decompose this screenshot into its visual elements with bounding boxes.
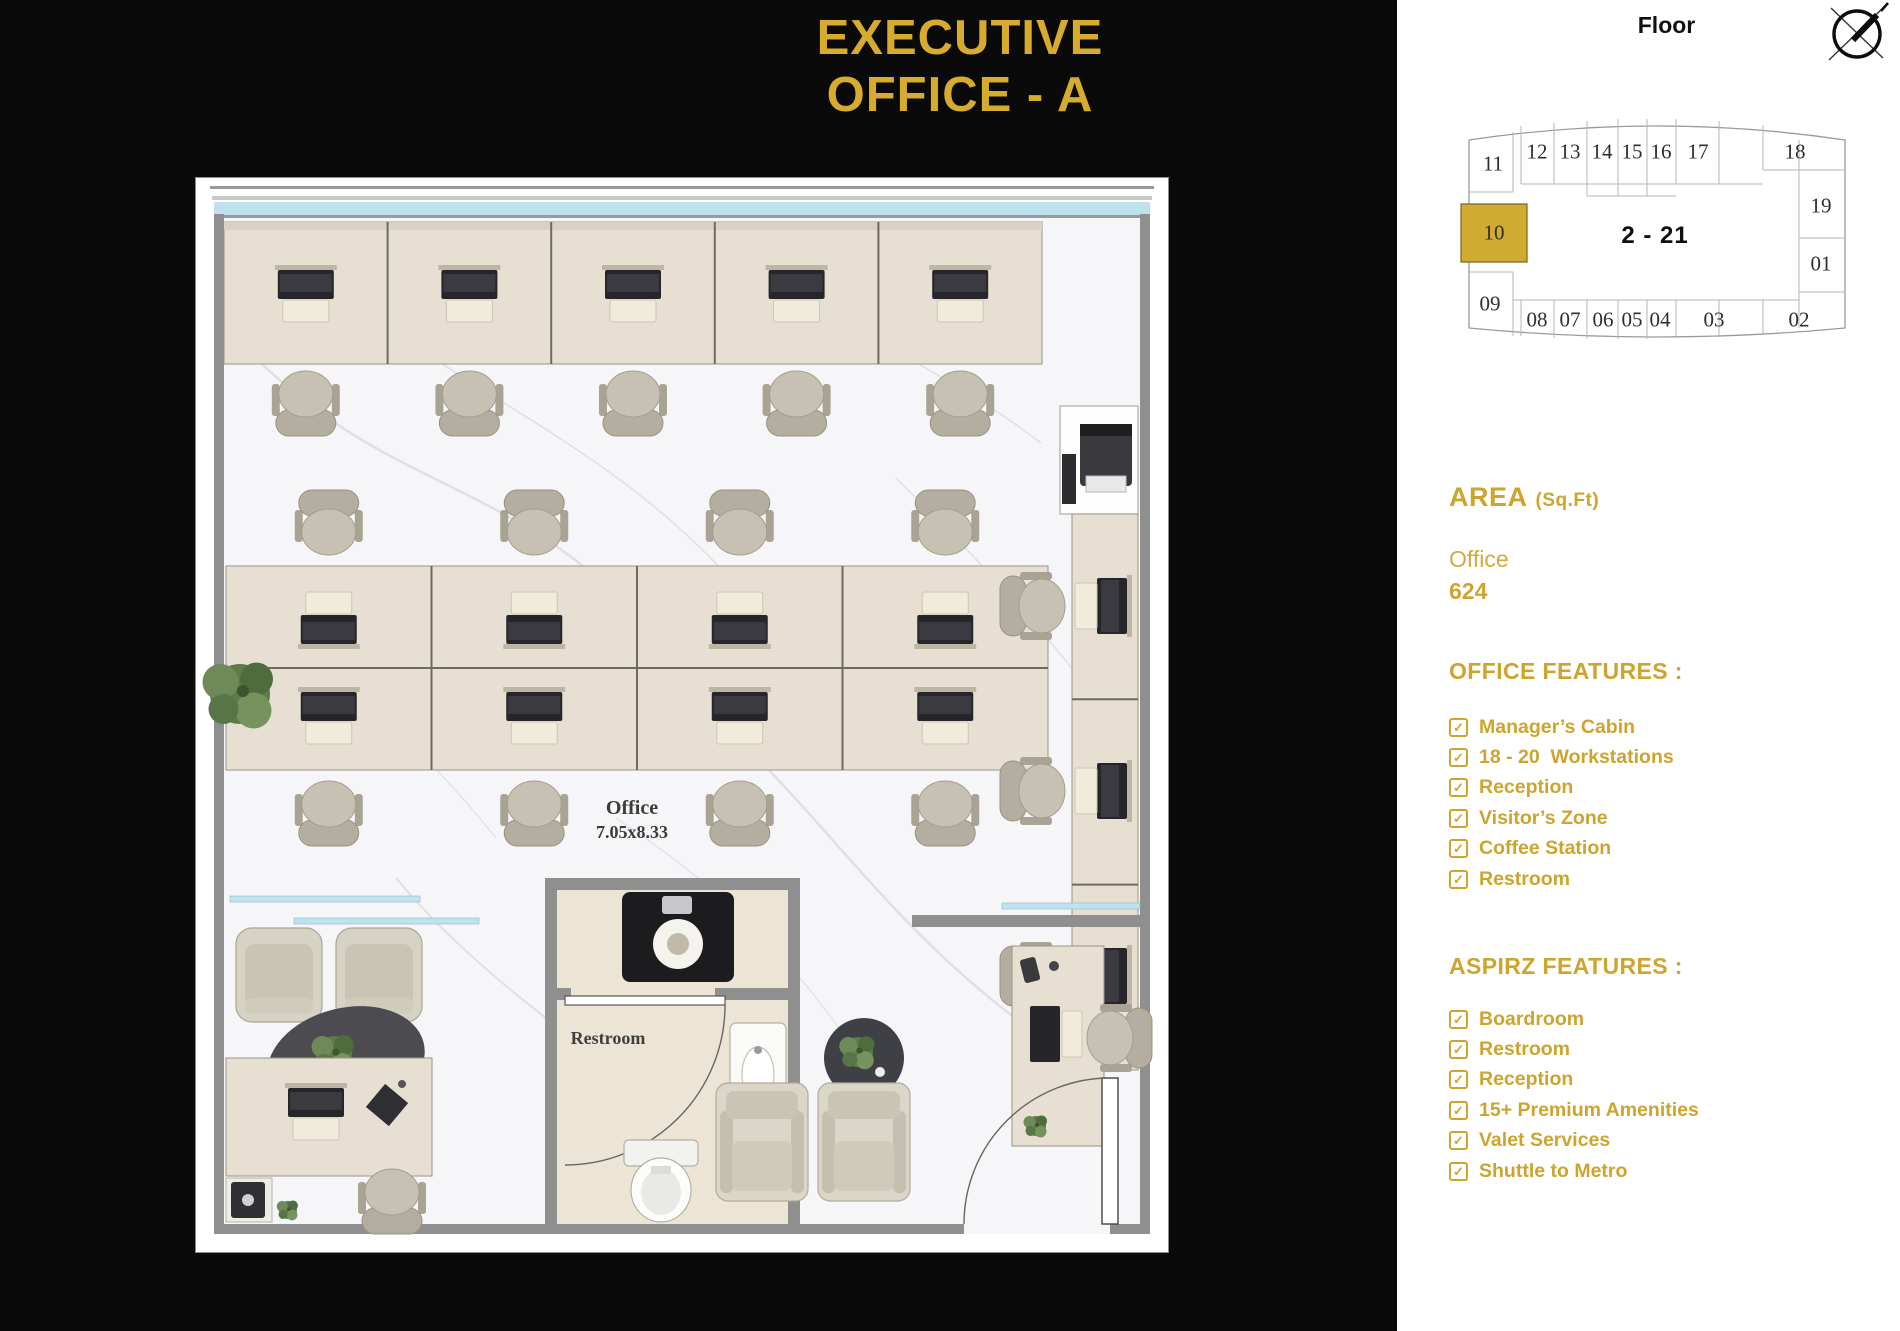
laptop xyxy=(503,592,565,649)
laptop xyxy=(602,265,664,322)
office-room-label: Office xyxy=(606,797,658,819)
checkbox-checked-icon: ✓ xyxy=(1449,718,1468,737)
unit-label: 18 xyxy=(1785,140,1806,165)
floor-key-diagram: 11 12 13 14 15 16 17 18 19 01 10 09 08 0… xyxy=(1457,92,1865,360)
wall xyxy=(545,878,557,1224)
feature-item-label: Boardroom xyxy=(1479,1008,1584,1031)
area-heading: AREA(Sq.Ft) xyxy=(1449,482,1599,513)
feature-item-label: Visitor’s Zone xyxy=(1479,807,1608,830)
unit-label: 12 xyxy=(1527,140,1548,165)
unit-label: 19 xyxy=(1811,194,1832,219)
unit-label: 02 xyxy=(1789,308,1810,333)
feature-item-label: Manager’s Cabin xyxy=(1479,716,1635,739)
unit-label: 03 xyxy=(1704,308,1725,333)
unit-label: 08 xyxy=(1527,308,1548,333)
laptop xyxy=(929,265,991,322)
left-wall xyxy=(214,214,224,1234)
plant xyxy=(1024,1116,1048,1138)
glass-partition xyxy=(1002,903,1140,909)
unit-label: 17 xyxy=(1688,140,1709,165)
floor-plan-drawing: Office 7.05x8.33 xyxy=(196,178,1168,1252)
unit-label: 05 xyxy=(1622,308,1643,333)
feature-item: ✓ Coffee Station xyxy=(1449,834,1869,864)
feature-item-label: Reception xyxy=(1479,1068,1573,1091)
waiting-armchair xyxy=(716,1083,808,1201)
laptop xyxy=(914,687,976,744)
checkbox-checked-icon: ✓ xyxy=(1449,809,1468,828)
feature-item: ✓ 15+ Premium Amenities xyxy=(1449,1095,1869,1125)
unit-label: 11 xyxy=(1483,152,1503,177)
laptop xyxy=(275,265,337,322)
feature-item: ✓ Reception xyxy=(1449,1065,1869,1095)
bottom-wall-right xyxy=(1110,1224,1150,1234)
feature-item: ✓ Manager’s Cabin xyxy=(1449,712,1869,742)
feature-item: ✓ Boardroom xyxy=(1449,1004,1869,1034)
checkbox-checked-icon: ✓ xyxy=(1449,1010,1468,1029)
coffee-cup xyxy=(242,1194,254,1206)
feature-item: ✓ Restroom xyxy=(1449,1034,1869,1064)
window-glass-strip xyxy=(214,202,1150,215)
laptop xyxy=(285,1083,347,1140)
floor-plan: Office 7.05x8.33 xyxy=(196,178,1168,1252)
feature-item: ✓ Valet Services xyxy=(1449,1126,1869,1156)
feature-item: ✓ Reception xyxy=(1449,773,1869,803)
right-wall xyxy=(1140,214,1150,1234)
feature-item-label: Restroom xyxy=(1479,1038,1570,1061)
laptop xyxy=(1075,760,1132,822)
glass-partition xyxy=(230,896,420,902)
coffee-station xyxy=(622,892,734,982)
restroom-label: Restroom xyxy=(571,1028,646,1048)
area-office-value: 624 xyxy=(1449,578,1487,605)
decor-tray xyxy=(875,1067,885,1077)
laptop xyxy=(298,592,360,649)
aspirz-features-list: ✓ Boardroom ✓ Restroom ✓ Reception ✓ 15+… xyxy=(1449,1004,1869,1186)
unit-label: 15 xyxy=(1622,140,1643,165)
unit-label: 06 xyxy=(1593,308,1614,333)
feature-item-label: Shuttle to Metro xyxy=(1479,1160,1627,1183)
restroom-door-leaf xyxy=(565,996,725,1005)
unit-label: 07 xyxy=(1560,308,1581,333)
area-office-label: Office xyxy=(1449,546,1509,573)
checkbox-checked-icon: ✓ xyxy=(1449,778,1468,797)
laptop xyxy=(766,265,828,322)
laptop xyxy=(503,687,565,744)
wall xyxy=(545,878,800,890)
printer-station xyxy=(1060,406,1138,514)
checkbox-checked-icon: ✓ xyxy=(1449,1162,1468,1181)
feature-item: ✓ Restroom xyxy=(1449,864,1869,894)
laptop xyxy=(298,687,360,744)
plant xyxy=(277,1201,298,1221)
feature-item-label: Coffee Station xyxy=(1479,837,1611,860)
laptop xyxy=(1075,575,1132,637)
compass-north-icon xyxy=(1817,0,1897,64)
feature-item-label: Restroom xyxy=(1479,868,1570,891)
office-features-heading: OFFICE FEATURES : xyxy=(1449,658,1683,685)
brochure-page: EXECUTIVE OFFICE - A xyxy=(0,0,1900,1331)
waiting-armchair xyxy=(818,1083,910,1201)
laptop xyxy=(709,687,771,744)
feature-item-label: 15+ Premium Amenities xyxy=(1479,1099,1699,1122)
checkbox-checked-icon: ✓ xyxy=(1449,870,1468,889)
checkbox-checked-icon: ✓ xyxy=(1449,1070,1468,1089)
area-unit-suffix: (Sq.Ft) xyxy=(1536,490,1600,511)
feature-item-label: Reception xyxy=(1479,776,1573,799)
office-features-list: ✓ Manager’s Cabin ✓ 18 - 20 Workstations… xyxy=(1449,712,1869,894)
laptop xyxy=(914,592,976,649)
feature-item: ✓ Visitor’s Zone xyxy=(1449,803,1869,833)
feature-item: ✓ 18 - 20 Workstations xyxy=(1449,742,1869,772)
entry-door-leaf xyxy=(1102,1078,1118,1224)
bottom-wall-left xyxy=(214,1224,964,1234)
exterior-wall-line xyxy=(210,186,1154,189)
unit-label: 14 xyxy=(1592,140,1613,165)
wall xyxy=(715,988,800,1000)
page-title: EXECUTIVE OFFICE - A xyxy=(740,10,1180,124)
checkbox-checked-icon: ✓ xyxy=(1449,1131,1468,1150)
desk-accessory xyxy=(1049,961,1059,971)
checkbox-checked-icon: ✓ xyxy=(1449,1040,1468,1059)
area-heading-text: AREA xyxy=(1449,482,1528,512)
laptop xyxy=(438,265,500,322)
plant xyxy=(839,1036,874,1069)
unit-label: 04 xyxy=(1650,308,1671,333)
feature-item: ✓ Shuttle to Metro xyxy=(1449,1156,1869,1186)
aspirz-features-heading: ASPIRZ FEATURES : xyxy=(1449,953,1683,980)
feature-item-label: 18 - 20 Workstations xyxy=(1479,746,1674,769)
feature-item-label: Valet Services xyxy=(1479,1129,1610,1152)
pen-holder xyxy=(398,1080,406,1088)
unit-label: 13 xyxy=(1560,140,1581,165)
laptop xyxy=(709,592,771,649)
office-room-dimensions: 7.05x8.33 xyxy=(596,822,668,842)
window-frame xyxy=(212,196,1152,200)
page-title-line1: EXECUTIVE xyxy=(740,10,1180,67)
laptop-base xyxy=(1062,1011,1082,1057)
laptop xyxy=(1030,1006,1060,1062)
info-panel: Floor xyxy=(1397,0,1900,1331)
wall xyxy=(912,915,1140,927)
unit-label: 01 xyxy=(1811,252,1832,277)
visitor-armchair xyxy=(236,928,322,1022)
unit-label: 09 xyxy=(1480,292,1501,317)
glass-partition xyxy=(294,918,479,924)
unit-label: 16 xyxy=(1651,140,1672,165)
checkbox-checked-icon: ✓ xyxy=(1449,1101,1468,1120)
floor-range-label: 2 - 21 xyxy=(1621,222,1688,250)
checkbox-checked-icon: ✓ xyxy=(1449,839,1468,858)
plant xyxy=(203,663,274,729)
checkbox-checked-icon: ✓ xyxy=(1449,748,1468,767)
window-sill xyxy=(214,215,1150,218)
unit-label-highlighted: 10 xyxy=(1484,221,1505,246)
page-title-line2: OFFICE - A xyxy=(740,67,1180,124)
